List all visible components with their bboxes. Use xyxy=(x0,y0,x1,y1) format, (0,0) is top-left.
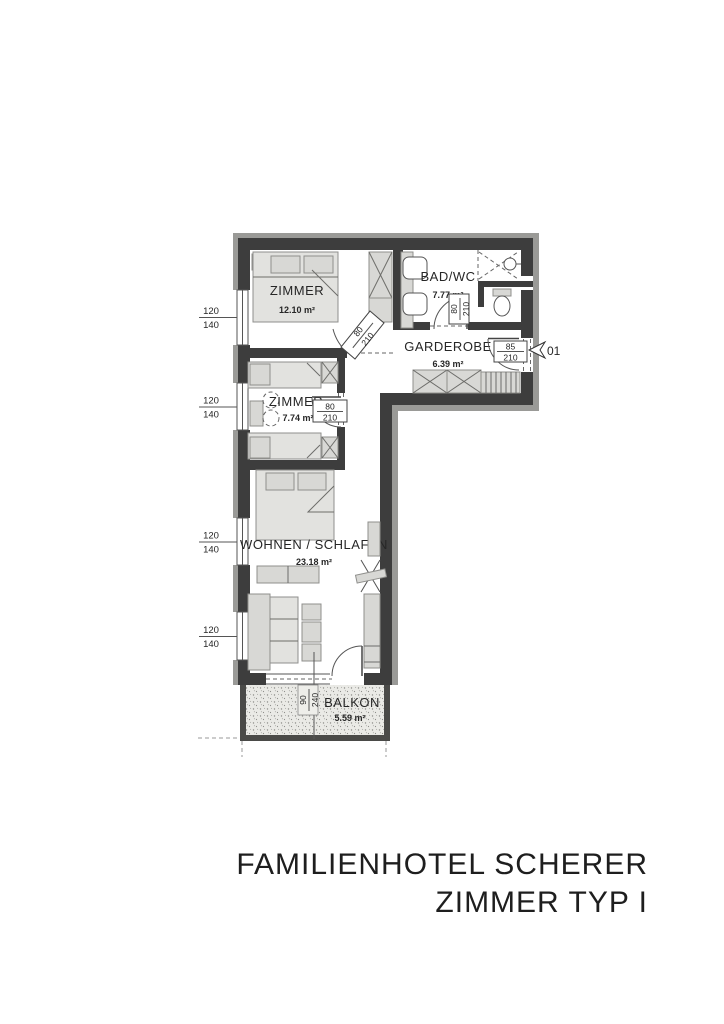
table xyxy=(250,401,263,426)
room-label: GARDEROBE xyxy=(404,339,492,354)
door-width-label: 80 xyxy=(449,304,459,314)
plan-title-line1: FAMILIENHOTEL SCHERER xyxy=(236,848,648,881)
room-area: 12.10 m² xyxy=(279,305,315,315)
wardrobe xyxy=(322,437,338,458)
door-width-label: 80 xyxy=(325,402,335,412)
sideboard xyxy=(257,566,319,583)
pillow xyxy=(271,256,300,273)
balcony-door xyxy=(332,646,362,676)
side-table xyxy=(302,622,321,642)
wardrobe xyxy=(369,252,392,322)
room-label: WOHNEN / SCHLAFEN xyxy=(240,537,388,552)
window-dim-4: 120 140 xyxy=(199,625,237,650)
window-width-label: 120 xyxy=(203,306,219,317)
svg-text:140: 140 xyxy=(203,410,219,421)
pillow xyxy=(298,473,326,490)
door-width-label: 90 xyxy=(298,695,308,705)
room-badwc: BAD/WC 7.77 m² 80 210 xyxy=(401,250,521,329)
side-table xyxy=(302,604,321,620)
pillow xyxy=(266,473,294,490)
room-zimmer-2: ZIMMER 7.74 m² 80 210 xyxy=(248,362,347,459)
room-zimmer-1: ZIMMER 12.10 m² 80 210 xyxy=(252,252,393,359)
title-block: FAMILIENHOTEL SCHERER ZIMMER TYP I xyxy=(236,848,648,919)
pillow xyxy=(304,256,333,273)
svg-text:140: 140 xyxy=(203,545,219,556)
window-dim-1: 120 140 xyxy=(199,306,237,331)
door-height-label: 210 xyxy=(503,353,517,363)
plan-sheet: 120 140 120 140 120 140 120 140 xyxy=(0,0,724,1024)
washbasin xyxy=(403,293,427,315)
bath-partition xyxy=(478,281,533,287)
svg-text:120: 120 xyxy=(203,396,219,407)
room-area: 6.39 m² xyxy=(432,359,463,369)
shower-head-icon xyxy=(504,258,516,270)
side-table xyxy=(302,644,321,661)
balcony: 90 240 BALKON 5.59 m² xyxy=(198,652,390,757)
pillow xyxy=(250,364,270,385)
pillow xyxy=(250,437,270,458)
floor-plan-drawing: 120 140 120 140 120 140 120 140 xyxy=(0,0,724,1024)
entrance-door: 85 210 xyxy=(488,339,531,372)
room-area: 5.59 m² xyxy=(334,713,365,723)
cabinet xyxy=(368,522,380,556)
cabinet-tall xyxy=(364,594,380,668)
window-dim-2: 120 140 xyxy=(199,396,237,421)
plan-title-line2: ZIMMER TYP I xyxy=(435,886,648,919)
wall-top xyxy=(238,238,533,250)
sofa xyxy=(248,594,298,670)
room-area: 7.74 m² xyxy=(282,413,313,423)
door-height-label: 240 xyxy=(310,693,320,707)
door-height-label: 210 xyxy=(323,413,337,423)
door-width-label: 85 xyxy=(506,342,516,352)
window-dimension-labels: 120 140 120 140 120 140 120 140 xyxy=(199,306,237,650)
toilet xyxy=(493,289,511,316)
window-height-label: 140 xyxy=(203,320,219,331)
chair xyxy=(263,410,279,426)
wardrobe-row xyxy=(413,370,520,393)
shower xyxy=(478,250,521,281)
room-label: ZIMMER xyxy=(270,283,324,298)
balcony-door-dim: 90 240 xyxy=(298,685,320,715)
room-label: BALKON xyxy=(324,695,380,710)
svg-text:120: 120 xyxy=(203,625,219,636)
svg-text:140: 140 xyxy=(203,639,219,650)
balcony-glazing xyxy=(266,673,332,685)
wardrobe xyxy=(322,362,338,383)
door-height-label: 210 xyxy=(461,302,471,316)
svg-text:120: 120 xyxy=(203,531,219,542)
room-label: BAD/WC xyxy=(421,269,476,284)
window-dim-3: 120 140 xyxy=(199,531,237,556)
entrance-number: 01 xyxy=(547,344,561,358)
